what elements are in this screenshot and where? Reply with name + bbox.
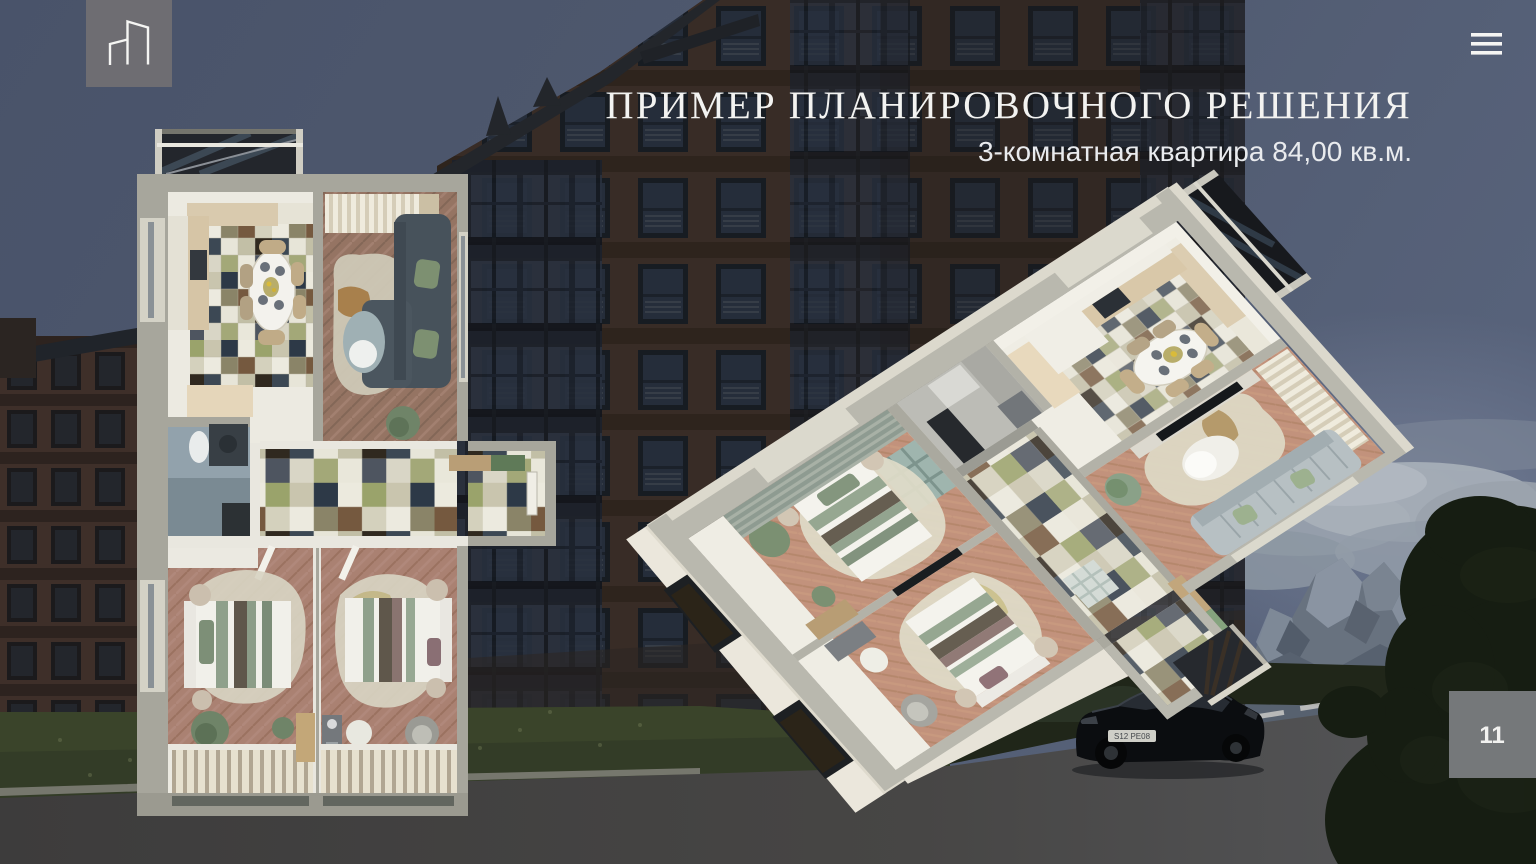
svg-text:S12 PE08: S12 PE08 xyxy=(1114,732,1151,741)
svg-text:ПРИМЕР ПЛАНИРОВОЧНОГО РЕШЕНИЯ: ПРИМЕР ПЛАНИРОВОЧНОГО РЕШЕНИЯ xyxy=(605,84,1412,127)
svg-text:3-комнатная квартира 84,00 кв.: 3-комнатная квартира 84,00 кв.м. xyxy=(978,136,1412,167)
svg-text:11: 11 xyxy=(1479,722,1504,749)
